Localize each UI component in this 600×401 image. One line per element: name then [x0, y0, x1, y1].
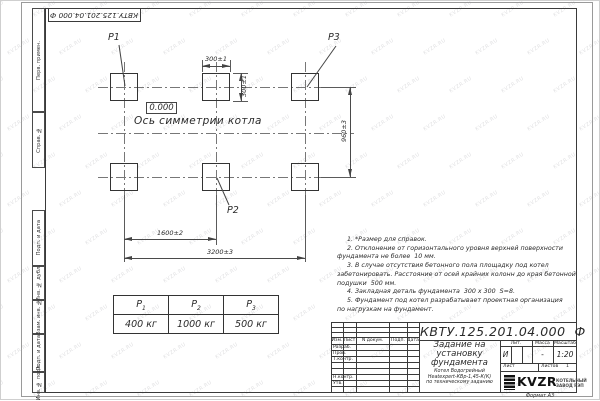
note-line: фундамента не более 10 мм.	[337, 253, 583, 262]
tb-line	[538, 363, 539, 371]
load-table-header-row: Р1 Р2 Р3	[114, 296, 279, 315]
tb-row-prov: Пров.	[333, 351, 346, 356]
note-line: забетонировать. Расстояние от осей крайн…	[337, 271, 583, 280]
tb-header-ndokum: N докум.	[356, 338, 389, 343]
tb-line	[331, 386, 419, 387]
note-line: 4. Закладная деталь фундамента 300 x 300…	[337, 288, 583, 297]
tb-row-tkontr: Т.контр.	[333, 357, 353, 362]
tb-scale-value: 1:20	[553, 350, 577, 359]
tb-line	[331, 368, 419, 369]
note-line: 5. Фундамент под котел разрабатывает про…	[337, 297, 583, 306]
tb-sheet-label: Лист	[503, 364, 515, 369]
tb-line	[500, 340, 501, 393]
tb-header-data: Дата	[407, 338, 419, 343]
load-table-header: Р1	[114, 296, 169, 315]
drawing-sheet: KVZR.RUKVZR.RUKVZR.RUKVZR.RUKVZR.RUKVZR.…	[0, 0, 600, 400]
label-p1: Р1	[108, 32, 120, 43]
tb-line	[331, 327, 419, 328]
tb-line	[331, 380, 419, 381]
tb-designation: КВТУ.125.201.04.000 Ф	[420, 324, 576, 339]
label-p2: Р2	[227, 205, 239, 216]
kvzr-logo-icon	[504, 375, 515, 390]
tb-lit-value: И	[500, 350, 511, 359]
tb-header-podp: Подп.	[389, 338, 407, 343]
tb-mass-label: Масса	[532, 341, 553, 346]
tb-product-line: по техническому заданию	[419, 380, 500, 386]
tb-lit-label: Лит.	[500, 341, 532, 346]
tb-line	[331, 362, 419, 363]
tb-product-name: Котел Водогрейный Heatexpert-КВр-1,45-К(…	[419, 369, 500, 386]
tb-line	[500, 371, 577, 372]
load-table-value: 1000 кг	[169, 315, 224, 334]
tb-row-razrab: Разраб.	[333, 345, 351, 350]
notes-list: 1. *Размер для справок.2. Отклонение от …	[337, 236, 583, 314]
format-label: Формат А3	[497, 393, 583, 399]
tb-header-list: Лист	[343, 338, 356, 343]
tb-header-izm: Изм.	[331, 338, 343, 343]
kvzr-logo-caption: КОТЕЛЬНЫЙ ЗАВОД РЭП	[556, 378, 587, 388]
axis-label: Ось симметрии котла	[134, 115, 262, 127]
label-p3: Р3	[328, 32, 340, 43]
load-table-header: Р2	[169, 296, 224, 315]
tb-line	[500, 346, 577, 347]
tb-sheets-label: Листов	[541, 364, 558, 369]
elevation-mark: 0.000	[146, 102, 177, 114]
load-table-value: 500 кг	[224, 315, 279, 334]
tb-row-utv: Утв.	[333, 381, 343, 386]
tb-line	[511, 346, 512, 363]
tb-mass-value: -	[532, 350, 553, 359]
note-line: 3. В случае отсутствия бетонного пола пл…	[337, 262, 583, 271]
kvzr-logo-text: KVZR	[517, 374, 557, 389]
tb-line	[331, 332, 419, 333]
load-table-value-row: 400 кг 1000 кг 500 кг	[114, 315, 279, 334]
tb-title: Задание на установку фундамента	[419, 341, 500, 369]
note-line: по нагрузкам на фундамент.	[337, 306, 583, 315]
load-table-header: Р3	[224, 296, 279, 315]
load-table-value: 400 кг	[114, 315, 169, 334]
tb-line	[522, 346, 523, 363]
tb-title-line: фундамента	[419, 359, 500, 368]
note-line: подушки 500 мм.	[337, 280, 583, 289]
note-line: 1. *Размер для справок.	[337, 236, 583, 245]
tb-sheets-value: 1	[566, 364, 569, 369]
kvzr-caption-line: ЗАВОД РЭП	[556, 383, 587, 388]
tb-scale-label: Масштаб	[553, 341, 577, 346]
load-table: Р1 Р2 Р3 400 кг 1000 кг 500 кг	[113, 295, 279, 334]
tb-row-nkontr: Н.контр.	[333, 375, 354, 380]
